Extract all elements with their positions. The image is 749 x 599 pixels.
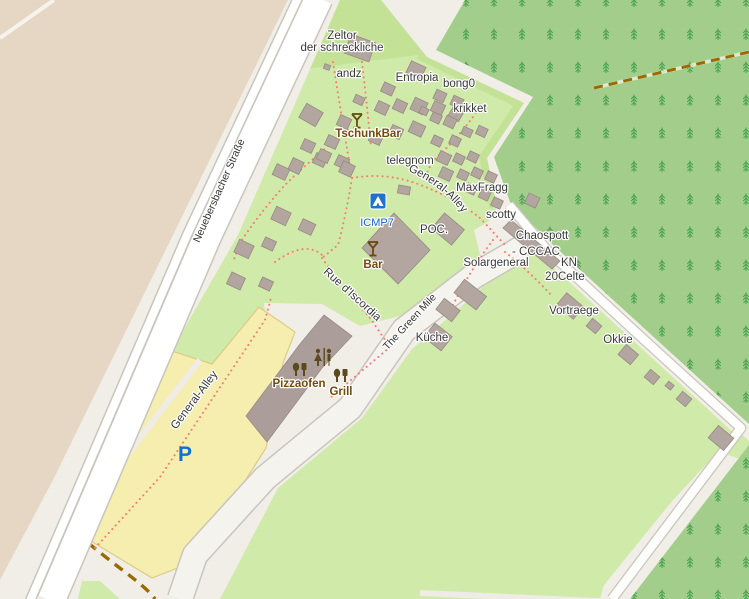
svg-text:krikket: krikket [453, 103, 487, 115]
svg-text:Vortraege: Vortraege [549, 305, 599, 317]
svg-text:Entropia: Entropia [396, 72, 439, 84]
svg-text:Zeltor: Zeltor [327, 30, 357, 42]
svg-text:Pizzaofen: Pizzaofen [272, 378, 325, 390]
svg-text:Küche: Küche [416, 332, 449, 344]
svg-text:Chaospott: Chaospott [516, 230, 569, 242]
svg-text:POC.: POC. [420, 224, 448, 236]
svg-text:P: P [178, 443, 192, 466]
svg-text:20Celte: 20Celte [545, 271, 585, 283]
svg-text:Solargeneral: Solargeneral [463, 257, 528, 269]
svg-text:telegnom: telegnom [386, 155, 433, 167]
svg-text:scotty: scotty [486, 209, 516, 221]
svg-text:TschunkBar: TschunkBar [335, 128, 401, 140]
svg-text:der schreckliche: der schreckliche [300, 42, 383, 54]
svg-text:Grill: Grill [329, 386, 352, 398]
svg-text:andz: andz [337, 68, 362, 80]
svg-text:KN: KN [561, 257, 577, 269]
svg-text:Okkie: Okkie [603, 334, 632, 346]
svg-text:bong0: bong0 [443, 78, 475, 90]
svg-text:MaxFragg: MaxFragg [456, 182, 508, 194]
svg-text:ICMP7: ICMP7 [360, 217, 394, 229]
svg-text:Bar: Bar [363, 259, 383, 271]
